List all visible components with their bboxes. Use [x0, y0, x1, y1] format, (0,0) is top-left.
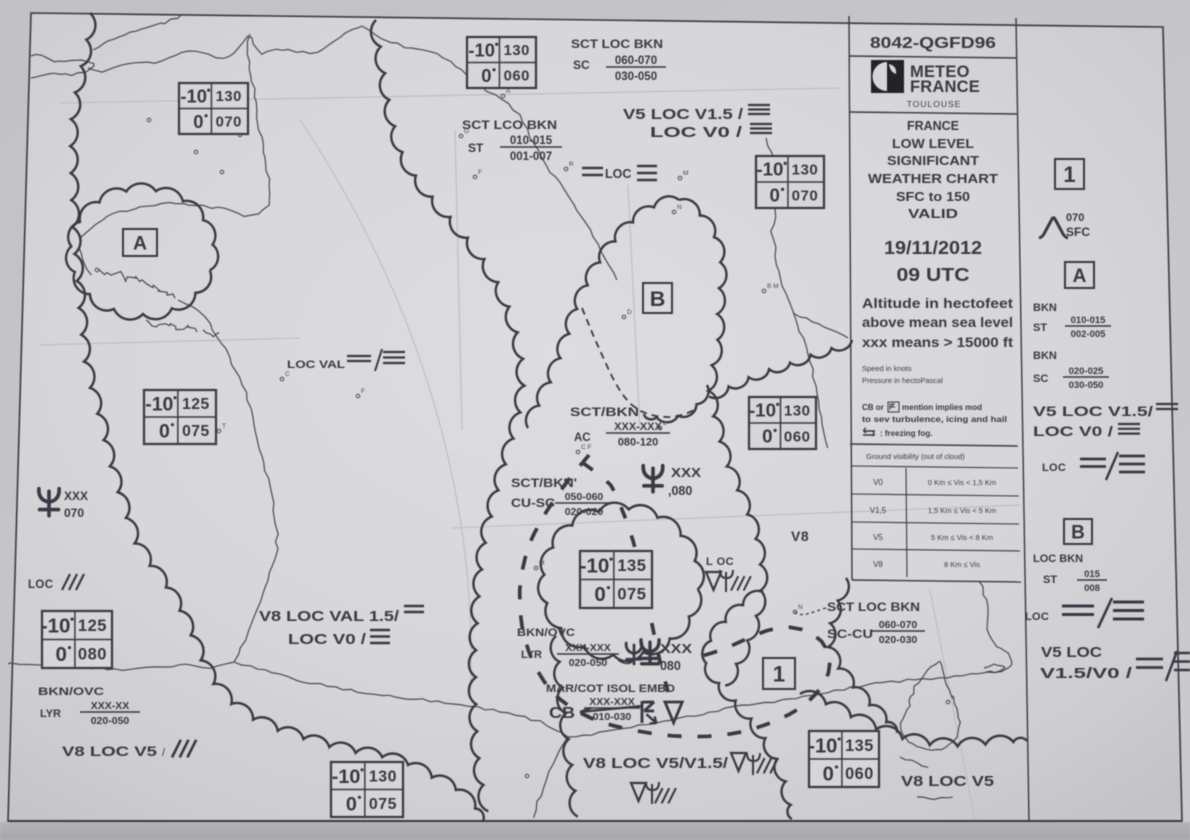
svg-text:020-025: 020-025 — [1069, 366, 1105, 377]
svg-text:ST: ST — [1033, 322, 1047, 334]
svg-text:LYR: LYR — [40, 708, 61, 720]
svg-text:BKN: BKN — [1033, 302, 1057, 314]
svg-text:015: 015 — [1084, 569, 1101, 580]
svg-text:070: 070 — [792, 187, 819, 204]
svg-text:09 UTC: 09 UTC — [897, 265, 970, 285]
svg-text:FRANCE: FRANCE — [907, 118, 959, 133]
svg-text:5 Km ≤ Vis < 8 Km: 5 Km ≤ Vis < 8 Km — [931, 533, 993, 542]
svg-text:Speed in knots: Speed in knots — [862, 364, 912, 373]
svg-text:080: 080 — [78, 645, 107, 664]
svg-text:010-015: 010-015 — [1071, 315, 1107, 326]
svg-text:-10: -10 — [41, 615, 71, 638]
svg-text:V5 LOC V1.5 /: V5 LOC V1.5 / — [623, 106, 744, 123]
svg-text:ST: ST — [1043, 574, 1057, 586]
svg-text:mention implies mod: mention implies mod — [902, 403, 982, 412]
svg-text:M: M — [683, 170, 688, 177]
svg-text:020-050: 020-050 — [569, 657, 608, 669]
svg-text:L: L — [663, 420, 667, 427]
svg-text:010-015: 010-015 — [510, 135, 553, 147]
svg-text:XXX: XXX — [660, 642, 693, 656]
svg-text:130: 130 — [216, 89, 242, 105]
svg-text:LOC V0 /: LOC V0 / — [288, 631, 367, 648]
svg-text:to sev turbulence, icing and h: to sev turbulence, icing and hail — [862, 415, 1007, 424]
svg-text:008: 008 — [1084, 583, 1100, 594]
svg-text:e: e — [951, 694, 955, 701]
svg-text:0: 0 — [481, 65, 491, 86]
svg-text:-10: -10 — [468, 39, 495, 60]
svg-text:0: 0 — [346, 793, 357, 815]
svg-text:LOC: LOC — [28, 579, 53, 591]
svg-text:A: A — [1073, 266, 1087, 287]
svg-text:F: F — [361, 388, 365, 395]
svg-text:080-120: 080-120 — [618, 437, 658, 449]
svg-text:LOC VAL: LOC VAL — [287, 359, 345, 371]
svg-text:-10: -10 — [756, 159, 783, 180]
svg-text:MAR/COT ISOL EMBD: MAR/COT ISOL EMBD — [546, 683, 675, 695]
svg-text:-10: -10 — [749, 400, 776, 421]
svg-text:CB or: CB or — [862, 403, 884, 412]
svg-text:SFC to 150: SFC to 150 — [896, 189, 970, 204]
svg-text:SC: SC — [573, 58, 590, 72]
svg-text:130: 130 — [784, 402, 811, 419]
svg-text:BKN: BKN — [1033, 350, 1057, 362]
svg-text:: freezing fog.: : freezing fog. — [880, 429, 932, 438]
svg-text:TOULOUSE: TOULOUSE — [907, 99, 962, 109]
svg-text:V8 LOC V5: V8 LOC V5 — [901, 774, 994, 790]
svg-text:LOC: LOC — [605, 167, 631, 181]
svg-text:060: 060 — [784, 428, 811, 445]
svg-text:WEATHER CHART: WEATHER CHART — [868, 171, 998, 186]
svg-text:0 Km ≤ Vis < 1,5 Km: 0 Km ≤ Vis < 1,5 Km — [928, 478, 996, 487]
svg-text:Pressure in hectoPascal: Pressure in hectoPascal — [862, 376, 943, 385]
svg-text:ST: ST — [468, 141, 484, 155]
svg-text:VALID: VALID — [908, 206, 958, 221]
svg-text:060-070: 060-070 — [615, 55, 657, 67]
svg-text:030-050: 030-050 — [1069, 380, 1104, 391]
svg-text:,080: ,080 — [668, 484, 692, 498]
svg-text:V5 LOC: V5 LOC — [1041, 644, 1102, 661]
svg-text:030-050: 030-050 — [615, 71, 657, 83]
svg-text:070: 070 — [216, 115, 242, 131]
svg-text:075: 075 — [617, 585, 646, 604]
svg-text:020-030: 020-030 — [879, 634, 918, 646]
svg-text:V8: V8 — [873, 560, 883, 569]
svg-text:075: 075 — [182, 423, 210, 440]
svg-text:020-020: 020-020 — [565, 506, 604, 518]
svg-text:LOC: LOC — [1025, 611, 1049, 623]
svg-text:'080: '080 — [657, 659, 681, 673]
svg-text:0: 0 — [770, 185, 780, 206]
svg-text:SCT LCO BKN: SCT LCO BKN — [462, 120, 557, 132]
svg-text:above mean sea level: above mean sea level — [862, 315, 1013, 330]
svg-text:0: 0 — [823, 763, 834, 785]
svg-text:135: 135 — [845, 737, 874, 755]
svg-text:SIGNIFICANT: SIGNIFICANT — [887, 153, 979, 168]
svg-text:130: 130 — [792, 161, 819, 178]
svg-text:060: 060 — [504, 69, 530, 85]
svg-text:N: N — [798, 604, 803, 611]
svg-text:070: 070 — [1066, 212, 1084, 224]
svg-text:FRANCE: FRANCE — [910, 78, 980, 96]
svg-text:LYR: LYR — [521, 649, 542, 661]
svg-text:130: 130 — [504, 43, 530, 59]
svg-text:1: 1 — [1063, 162, 1075, 187]
svg-text:V8 LOC V5/V1.5/: V8 LOC V5/V1.5/ — [583, 756, 728, 772]
svg-text:V8 LOC V5: V8 LOC V5 — [62, 743, 157, 759]
svg-text:SC: SC — [1033, 373, 1048, 385]
svg-text:1,5 Km ≤ Vis < 5 Km: 1,5 Km ≤ Vis < 5 Km — [928, 506, 996, 515]
svg-text:V8 LOC VAL 1.5/: V8 LOC VAL 1.5/ — [259, 608, 400, 625]
svg-text:8 Km ≤ Vis: 8 Km ≤ Vis — [944, 560, 980, 569]
svg-text:CU-SC: CU-SC — [511, 498, 555, 510]
svg-text:SC-CU: SC-CU — [827, 629, 873, 641]
svg-text:XXX-XX: XXX-XX — [91, 700, 130, 712]
svg-text:V0: V0 — [873, 478, 883, 487]
svg-text:BKN/OVC: BKN/OVC — [38, 686, 104, 698]
svg-text:SCT LOC BKN: SCT LOC BKN — [827, 602, 920, 614]
svg-text:001-007: 001-007 — [510, 151, 552, 163]
svg-text:1: 1 — [773, 662, 785, 687]
svg-text:-10: -10 — [580, 555, 610, 578]
svg-text:C: C — [285, 371, 290, 378]
svg-text:0: 0 — [594, 583, 605, 606]
svg-text:135: 135 — [617, 556, 646, 575]
svg-text:0: 0 — [159, 420, 170, 442]
svg-text:XXX-XXX: XXX-XXX — [565, 642, 611, 654]
svg-text:V1.5/V0 /: V1.5/V0 / — [1040, 665, 1133, 682]
svg-text:-10: -10 — [332, 766, 361, 788]
svg-text:LOC: LOC — [1042, 462, 1066, 474]
svg-text:050-060: 050-060 — [565, 491, 604, 503]
svg-text:8042-QGFD96: 8042-QGFD96 — [870, 35, 996, 52]
svg-text:-10: -10 — [808, 735, 837, 757]
svg-text:BKN/OVC: BKN/OVC — [517, 627, 575, 639]
svg-text:130: 130 — [369, 768, 397, 785]
svg-text:C F: C F — [581, 444, 592, 451]
svg-text:19/11/2012: 19/11/2012 — [884, 238, 982, 258]
svg-text:LOW LEVEL: LOW LEVEL — [892, 136, 974, 151]
svg-text:XXX-XXX: XXX-XXX — [589, 696, 635, 708]
svg-text:XXX: XXX — [671, 466, 702, 480]
svg-text:XXX-XXX: XXX-XXX — [614, 421, 662, 433]
svg-text:Ground visibility (out of clou: Ground visibility (out of cloud) — [866, 452, 965, 461]
svg-text:XXX: XXX — [64, 489, 88, 503]
svg-text:B: B — [650, 286, 666, 311]
svg-text:T: T — [222, 423, 226, 430]
svg-text:125: 125 — [78, 616, 107, 635]
svg-text:070: 070 — [64, 506, 84, 520]
svg-text:M: M — [539, 560, 544, 567]
svg-text:SCT/BKN': SCT/BKN' — [511, 478, 577, 490]
svg-text:-10: -10 — [145, 393, 173, 415]
svg-text:N: N — [677, 204, 682, 211]
svg-text:0: 0 — [55, 643, 66, 666]
svg-text:xxx means > 15000 ft: xxx means > 15000 ft — [862, 335, 1014, 350]
svg-text:020-050: 020-050 — [91, 715, 130, 727]
svg-text:075: 075 — [369, 796, 397, 813]
svg-text:L OC: L OC — [706, 556, 734, 568]
svg-text:V1,5: V1,5 — [870, 506, 887, 515]
svg-text:0: 0 — [762, 426, 772, 447]
svg-text:A: A — [133, 232, 147, 254]
svg-text:125: 125 — [182, 396, 210, 413]
svg-text:B M: B M — [767, 283, 779, 290]
svg-text:LOC BKN: LOC BKN — [1033, 553, 1083, 565]
svg-text:D: D — [627, 309, 632, 316]
svg-text:B: B — [1071, 522, 1085, 543]
svg-text:Altitude in hectofeet: Altitude in hectofeet — [862, 296, 1014, 311]
svg-text:SFC: SFC — [1066, 225, 1090, 239]
svg-text:060-070: 060-070 — [879, 619, 918, 631]
svg-text:002-005: 002-005 — [1071, 329, 1107, 340]
svg-text:SCT LOC BKN: SCT LOC BKN — [571, 39, 663, 51]
svg-text:V5 LOC V1.5/: V5 LOC V1.5/ — [1033, 404, 1153, 419]
svg-text:V8: V8 — [791, 528, 809, 544]
svg-text:R: R — [569, 161, 574, 168]
svg-text:SCT/BKN: SCT/BKN — [570, 407, 639, 419]
svg-text:F: F — [478, 169, 482, 176]
svg-text:CB: CB — [549, 705, 575, 722]
svg-text:V5: V5 — [873, 533, 883, 542]
svg-text:LOC V0 /: LOC V0 / — [1033, 424, 1113, 439]
svg-text:060: 060 — [845, 765, 874, 783]
svg-text:LOC V0 /: LOC V0 / — [650, 124, 743, 141]
svg-text:-10: -10 — [180, 85, 207, 106]
svg-text:0: 0 — [193, 111, 203, 132]
svg-text:010-030: 010-030 — [593, 711, 632, 723]
svg-text:AC: AC — [574, 432, 591, 444]
